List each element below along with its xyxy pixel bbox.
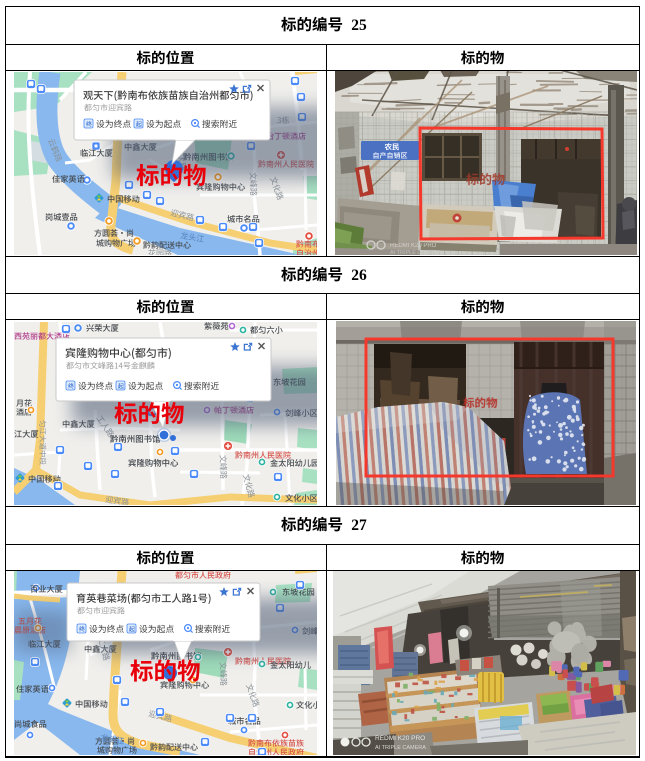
svg-text:25: 25 bbox=[351, 17, 367, 34]
svg-text:26: 26 bbox=[351, 267, 367, 284]
svg-text:REDMI K20 PRO: REDMI K20 PRO bbox=[375, 735, 425, 742]
svg-text:27: 27 bbox=[351, 517, 367, 534]
svg-text:AI TRIPLE CAMERA: AI TRIPLE CAMERA bbox=[375, 745, 426, 751]
svg-text:REDMI K20 PRO: REDMI K20 PRO bbox=[390, 243, 437, 249]
